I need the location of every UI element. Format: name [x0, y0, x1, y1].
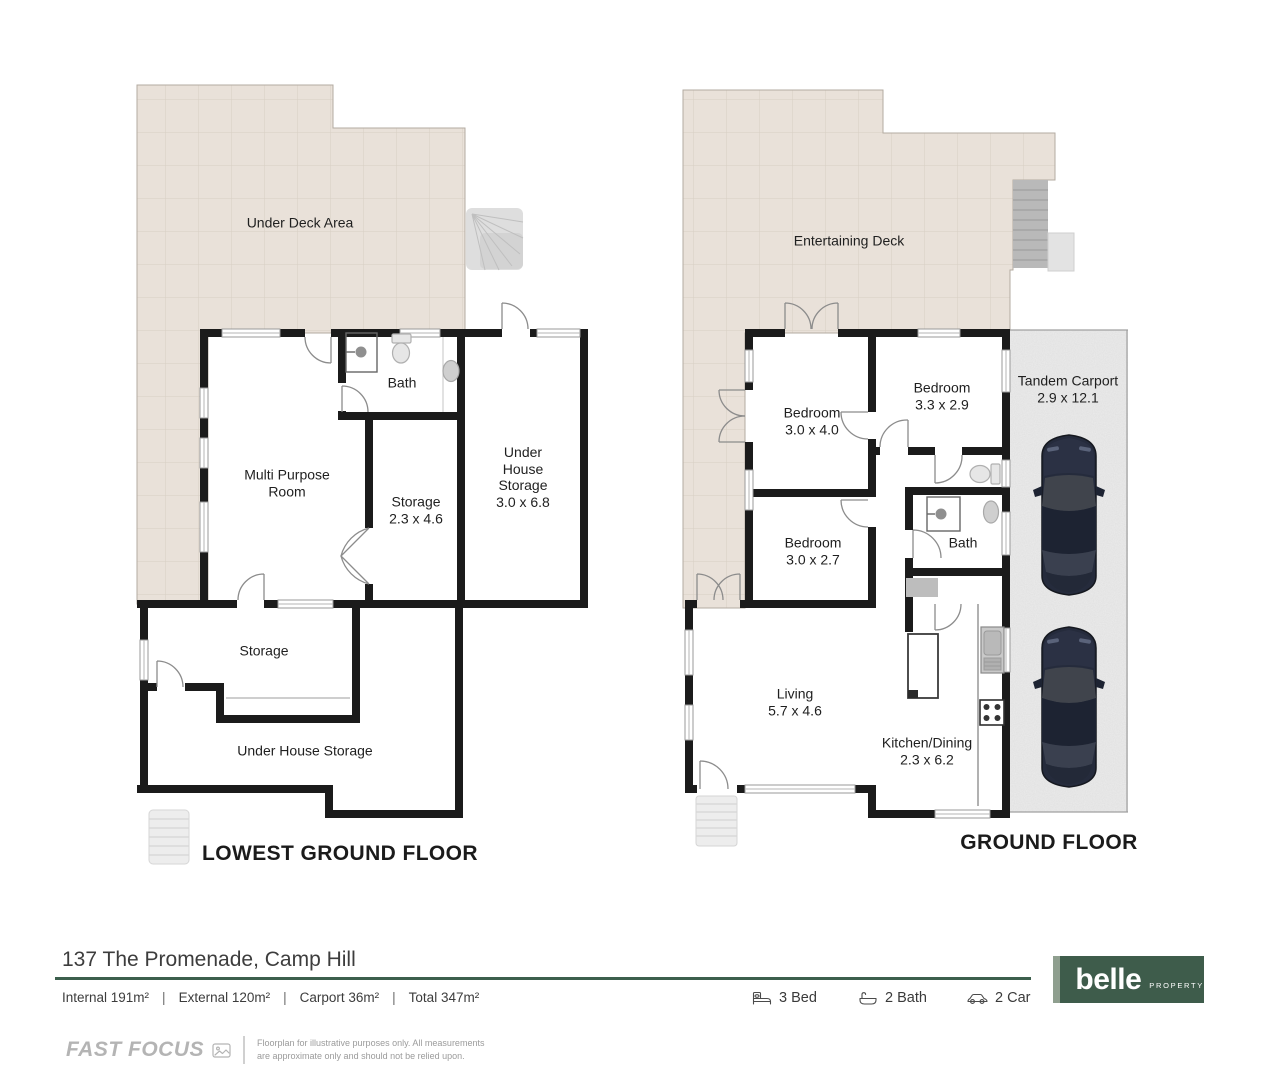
carport-area: Carport 36m²	[300, 990, 380, 1005]
ground-floor-plan	[683, 90, 1128, 846]
bed-icon	[752, 991, 772, 1006]
room-label-storage-upper: Storage 2.3 x 4.6	[389, 493, 443, 526]
kitchen-island	[908, 634, 938, 698]
fast-focus-logo: FAST FOCUS	[66, 1038, 204, 1062]
room-label-under-house-lower: Under House Storage	[237, 743, 372, 760]
stove-icon	[980, 700, 1004, 725]
curved-stairs-icon	[466, 208, 523, 270]
internal-area: Internal 191m²	[62, 990, 149, 1005]
property-address: 137 The Promenade, Camp Hill	[62, 948, 356, 972]
room-label-under-deck: Under Deck Area	[247, 215, 354, 232]
brand-tagline: PROPERTY	[1149, 981, 1204, 990]
ground-floor-title: GROUND FLOOR	[960, 831, 1137, 855]
shower-icon	[346, 333, 377, 372]
feature-beds: 3 Bed	[752, 990, 817, 1006]
room-label-bedroom-3: Bedroom 3.0 x 2.7	[785, 534, 842, 567]
room-label-bedroom-1: Bedroom 3.0 x 4.0	[784, 404, 841, 437]
belle-property-logo: belle PROPERTY	[1053, 956, 1204, 1003]
bath-icon	[858, 991, 878, 1006]
toilet-icon	[970, 464, 1000, 484]
room-label-living: Living 5.7 x 4.6	[768, 685, 822, 718]
sink-icon	[443, 337, 459, 412]
room-label-bath-ground: Bath	[949, 535, 978, 552]
room-label-kitchen-dining: Kitchen/Dining 2.3 x 6.2	[882, 734, 972, 767]
divider-rule	[55, 977, 1031, 980]
shower-icon	[927, 497, 960, 531]
room-label-storage-lower: Storage	[239, 643, 288, 660]
feature-baths: 2 Bath	[858, 990, 927, 1006]
sink-icon	[984, 501, 999, 523]
room-label-carport: Tandem Carport 2.9 x 12.1	[1018, 372, 1118, 405]
laundry-unit	[906, 578, 938, 597]
room-label-bedroom-2: Bedroom 3.3 x 2.9	[914, 379, 971, 412]
fridge-icon	[981, 627, 1004, 673]
car-icon	[966, 992, 988, 1005]
feature-cars: 2 Car	[966, 990, 1030, 1006]
deck-stairs-icon	[1013, 180, 1074, 271]
toilet-icon	[392, 334, 411, 363]
room-label-under-house-upper: Under House Storage 3.0 x 6.8	[490, 444, 556, 510]
total-area: Total 347m²	[409, 990, 480, 1005]
floorplan-page: Under Deck Area Bath Multi Purpose Room …	[0, 0, 1262, 1080]
lowest-ground-floor-title: LOWEST GROUND FLOOR	[202, 842, 478, 866]
brand-name: belle	[1075, 965, 1141, 995]
external-area: External 120m²	[179, 990, 271, 1005]
floorplan-canvas	[0, 0, 1262, 930]
stairs-icon	[149, 810, 189, 864]
logo-strip	[1053, 956, 1060, 1003]
disclaimer: Floorplan for illustrative purposes only…	[257, 1037, 484, 1063]
room-label-bath-lower: Bath	[388, 375, 417, 392]
picture-icon	[212, 1043, 231, 1058]
fast-focus-credit: FAST FOCUS Floorplan for illustrative pu…	[66, 1036, 484, 1064]
room-label-entertaining-deck: Entertaining Deck	[794, 233, 905, 250]
entry-stairs-icon	[696, 796, 737, 846]
area-measurements: Internal 191m² | External 120m² | Carpor…	[62, 990, 479, 1005]
credit-divider	[243, 1036, 245, 1064]
room-label-multi-purpose: Multi Purpose Room	[226, 466, 348, 499]
